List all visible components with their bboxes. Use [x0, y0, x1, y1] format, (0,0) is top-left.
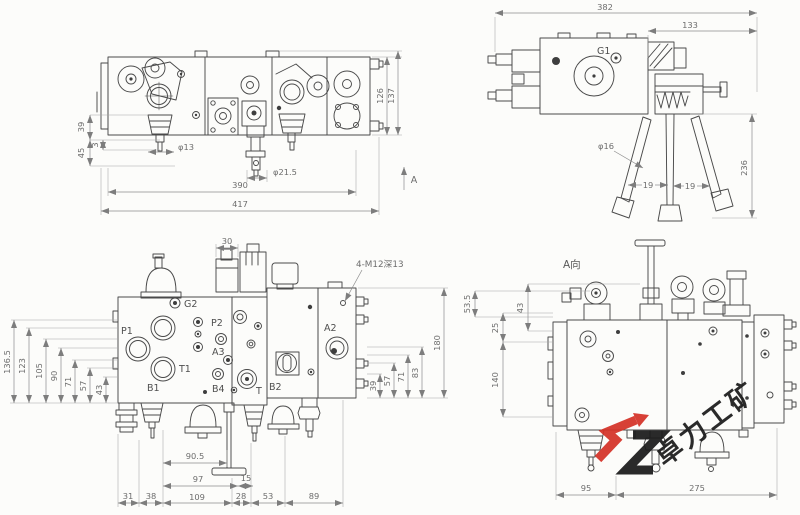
- drawing-sheet: 39 45 3 φ13 φ21.5 390 417 126 137: [0, 0, 800, 515]
- dim-rear-15: 15: [241, 473, 252, 483]
- dim-aview-43: 43: [515, 303, 525, 314]
- dim-rear-89: 89: [309, 491, 320, 501]
- port-label-a3: A3: [212, 347, 225, 358]
- port-label-b1: B1: [147, 383, 160, 394]
- thread-note: 4-M12深13: [356, 259, 404, 270]
- side-view-body: [488, 33, 733, 221]
- port-label-p2: P2: [211, 318, 223, 329]
- dim-side-19-right: 19: [685, 181, 696, 191]
- dim-aview-275: 275: [689, 483, 705, 493]
- dim-rear-28: 28: [236, 491, 247, 501]
- dim-side-382: 382: [597, 2, 613, 12]
- dim-rear-43: 43: [94, 385, 104, 396]
- dim-side-19-left: 19: [643, 180, 654, 190]
- dim-rear-97: 97: [193, 474, 204, 484]
- port-label-b4: B4: [212, 384, 225, 395]
- dim-rear-71: 71: [63, 377, 73, 388]
- dim-rear-r39: 39: [368, 381, 378, 392]
- view-direction-arrow-label: A: [411, 175, 418, 186]
- watermark: 卓力工矿: [598, 375, 764, 473]
- dim-rear-123: 123: [17, 358, 27, 374]
- rear-view-body: [113, 244, 368, 475]
- port-label-p1: P1: [121, 326, 133, 337]
- dim-side-133: 133: [682, 20, 698, 30]
- dim-rear-57: 57: [78, 381, 88, 392]
- dim-side-dia16: φ16: [598, 141, 614, 151]
- watermark-logo-red-stroke: [598, 420, 636, 459]
- dim-rear-90: 90: [49, 371, 59, 382]
- dim-rear-53: 53: [263, 491, 274, 501]
- a-view-label: A向: [563, 258, 581, 271]
- dim-rear-38: 38: [146, 491, 157, 501]
- port-label-a2: A2: [324, 323, 337, 334]
- port-label-g1: G1: [597, 46, 610, 57]
- dim-rear-31: 31: [123, 491, 134, 501]
- dim-aview-95: 95: [581, 483, 592, 493]
- dim-front-dia21-5: φ21.5: [273, 167, 297, 177]
- front-view: 39 45 3 φ13 φ21.5 390 417 126 137: [76, 51, 418, 215]
- side-view: 382 133 G1 φ16 19 19 236: [488, 2, 757, 221]
- dim-side-236: 236: [739, 160, 749, 176]
- dim-front-dia13: φ13: [178, 142, 194, 152]
- dim-rear-136-5: 136.5: [2, 350, 12, 374]
- port-label-t1: T1: [178, 364, 191, 375]
- port-label-t: T: [255, 386, 262, 397]
- dim-rear-30: 30: [222, 236, 233, 246]
- front-view-body: [97, 51, 383, 176]
- side-view-dimensions: 382 133 G1 φ16 19 19 236: [495, 2, 757, 218]
- dim-front-137: 137: [386, 88, 396, 104]
- dim-front-45: 45: [76, 148, 86, 159]
- port-label-g2: G2: [184, 299, 197, 310]
- dim-rear-90-5: 90.5: [186, 451, 204, 461]
- dim-front-390: 390: [232, 180, 248, 190]
- rear-view: 30 4-M12深13 G2 P1 T1 B1 P2 A3 B4 T B2 A2: [2, 236, 448, 507]
- dim-rear-r57: 57: [382, 376, 392, 387]
- port-label-b2: B2: [269, 382, 282, 393]
- dim-aview-140: 140: [490, 372, 500, 388]
- dim-front-39: 39: [76, 122, 86, 133]
- engineering-drawing: 39 45 3 φ13 φ21.5 390 417 126 137: [0, 0, 800, 515]
- dim-aview-25: 25: [490, 323, 500, 334]
- dim-front-126: 126: [375, 88, 385, 104]
- dim-rear-r83: 83: [410, 368, 420, 379]
- dim-rear-109: 109: [189, 492, 205, 502]
- dim-rear-r71: 71: [396, 372, 406, 383]
- dim-rear-105: 105: [34, 363, 44, 379]
- dim-front-417: 417: [232, 199, 248, 209]
- dim-aview-53-5: 53.5: [462, 295, 472, 313]
- rear-view-dimensions: 30 4-M12深13 G2 P1 T1 B1 P2 A3 B4 T B2 A2: [2, 236, 448, 507]
- dim-front-3: 3: [90, 142, 100, 147]
- dim-rear-180: 180: [432, 335, 442, 351]
